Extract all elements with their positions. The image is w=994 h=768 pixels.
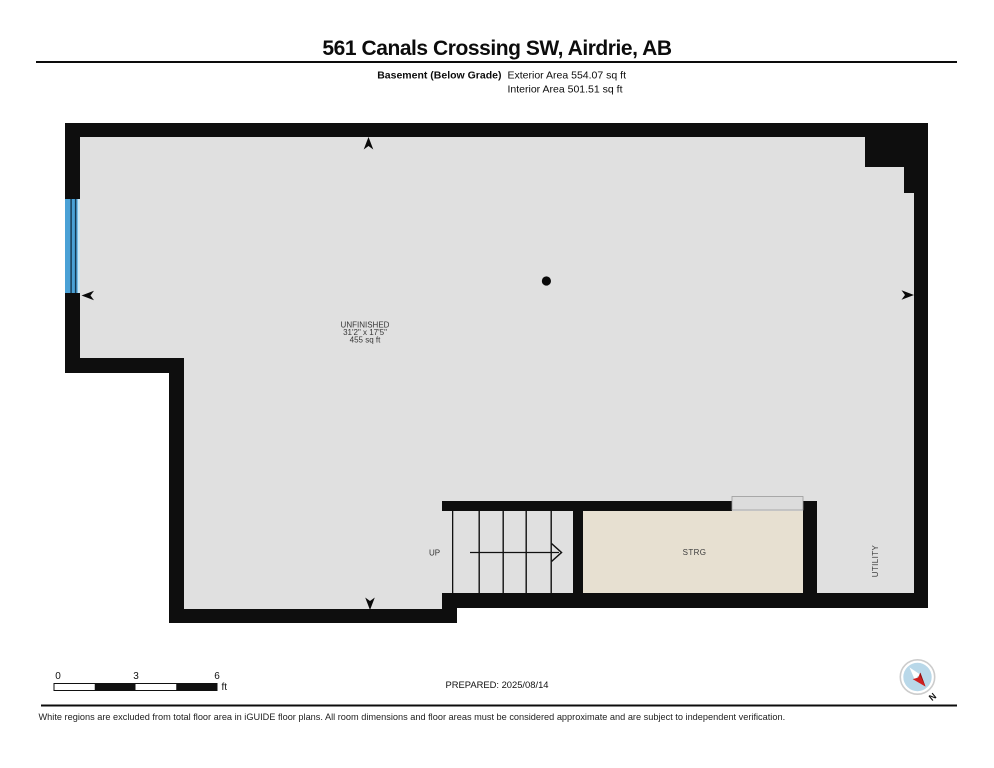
svg-text:0: 0: [55, 671, 61, 682]
svg-text:3: 3: [133, 671, 139, 682]
svg-text:561 Canals Crossing SW, Airdri: 561 Canals Crossing SW, Airdrie, AB: [322, 37, 671, 60]
svg-text:White regions are excluded fro: White regions are excluded from total fl…: [39, 712, 786, 722]
svg-text:UTILITY: UTILITY: [871, 544, 880, 577]
svg-text:Interior Area 501.51 sq ft: Interior Area 501.51 sq ft: [508, 84, 623, 96]
svg-text:PREPARED: 2025/08/14: PREPARED: 2025/08/14: [445, 679, 548, 690]
svg-text:UP: UP: [429, 549, 440, 558]
svg-text:455 sq ft: 455 sq ft: [350, 335, 381, 344]
svg-text:ft: ft: [222, 682, 228, 693]
svg-text:STRG: STRG: [683, 548, 707, 557]
svg-text:Exterior Area 554.07 sq ft: Exterior Area 554.07 sq ft: [508, 70, 627, 82]
svg-text:6: 6: [214, 671, 220, 682]
svg-text:Basement (Below Grade): Basement (Below Grade): [377, 70, 501, 82]
svg-text:N: N: [927, 691, 938, 703]
